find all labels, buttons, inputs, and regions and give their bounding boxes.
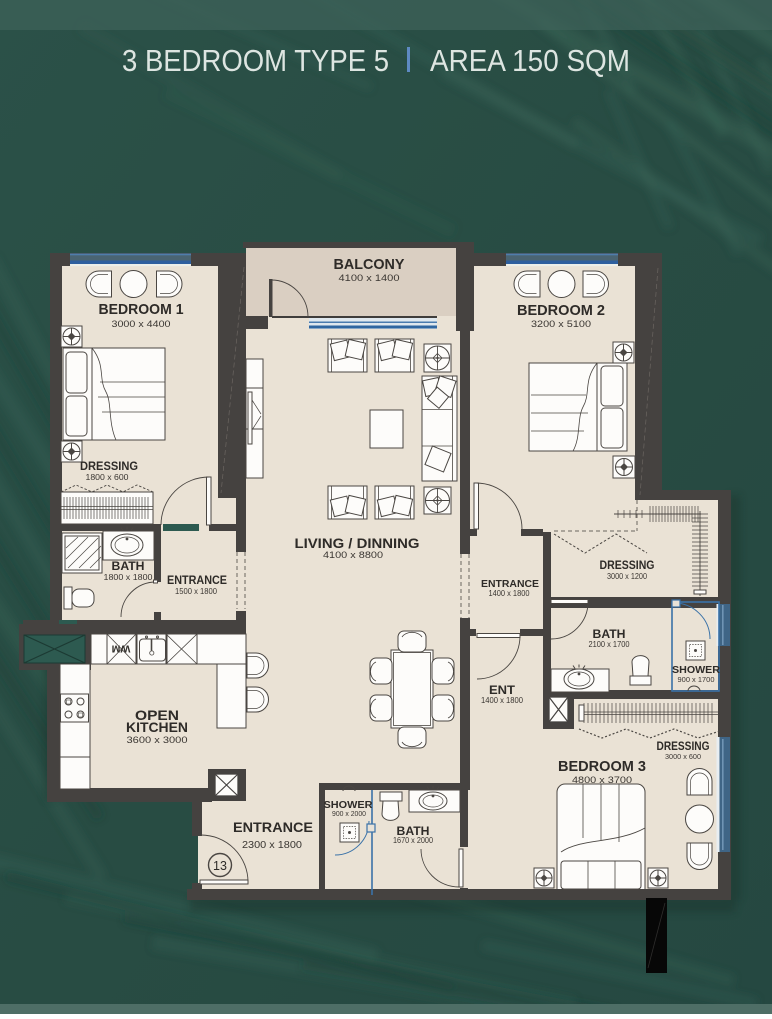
svg-text:KITCHEN: KITCHEN xyxy=(126,719,188,735)
svg-text:DRESSING: DRESSING xyxy=(80,461,138,473)
svg-text:1400 x 1800: 1400 x 1800 xyxy=(481,696,524,705)
svg-text:1400 x 1800: 1400 x 1800 xyxy=(489,589,531,598)
svg-text:1800 x 1800: 1800 x 1800 xyxy=(104,572,153,582)
svg-text:LIVING / DINNING: LIVING / DINNING xyxy=(295,535,420,551)
svg-text:ENT: ENT xyxy=(489,683,516,697)
svg-text:ENTRANCE: ENTRANCE xyxy=(167,573,227,587)
svg-text:900 x 2000: 900 x 2000 xyxy=(332,809,366,818)
svg-text:4800 x 3700: 4800 x 3700 xyxy=(572,775,632,786)
svg-text:3200 x 5100: 3200 x 5100 xyxy=(531,319,591,330)
svg-text:BEDROOM 1: BEDROOM 1 xyxy=(99,301,184,318)
svg-text:3000 x 1200: 3000 x 1200 xyxy=(607,572,647,581)
svg-text:2100 x 1700: 2100 x 1700 xyxy=(589,640,631,649)
svg-text:ENTRANCE: ENTRANCE xyxy=(233,820,313,835)
svg-text:3600 x 3000: 3600 x 3000 xyxy=(127,735,188,746)
svg-text:BEDROOM 3: BEDROOM 3 xyxy=(558,758,646,775)
svg-text:DRESSING: DRESSING xyxy=(600,560,655,572)
svg-text:900 x 1700: 900 x 1700 xyxy=(678,675,715,684)
svg-text:1500 x 1800: 1500 x 1800 xyxy=(175,587,218,596)
svg-text:AREA 150 SQM: AREA 150 SQM xyxy=(430,43,630,78)
svg-text:4100 x 1400: 4100 x 1400 xyxy=(339,273,400,284)
svg-text:13: 13 xyxy=(213,859,227,873)
svg-text:BALCONY: BALCONY xyxy=(334,256,405,273)
svg-text:WM: WM xyxy=(111,643,130,655)
svg-text:1670 x 2000: 1670 x 2000 xyxy=(393,836,433,845)
svg-text:2300 x 1800: 2300 x 1800 xyxy=(242,840,302,851)
svg-text:4100 x 8800: 4100 x 8800 xyxy=(323,550,383,561)
svg-text:3000 x 4400: 3000 x 4400 xyxy=(112,319,171,330)
svg-text:3000 x 600: 3000 x 600 xyxy=(665,752,701,761)
svg-text:BEDROOM 2: BEDROOM 2 xyxy=(517,302,605,319)
svg-text:3 BEDROOM TYPE 5: 3 BEDROOM TYPE 5 xyxy=(122,43,389,78)
svg-text:1800 x 600: 1800 x 600 xyxy=(86,473,130,482)
